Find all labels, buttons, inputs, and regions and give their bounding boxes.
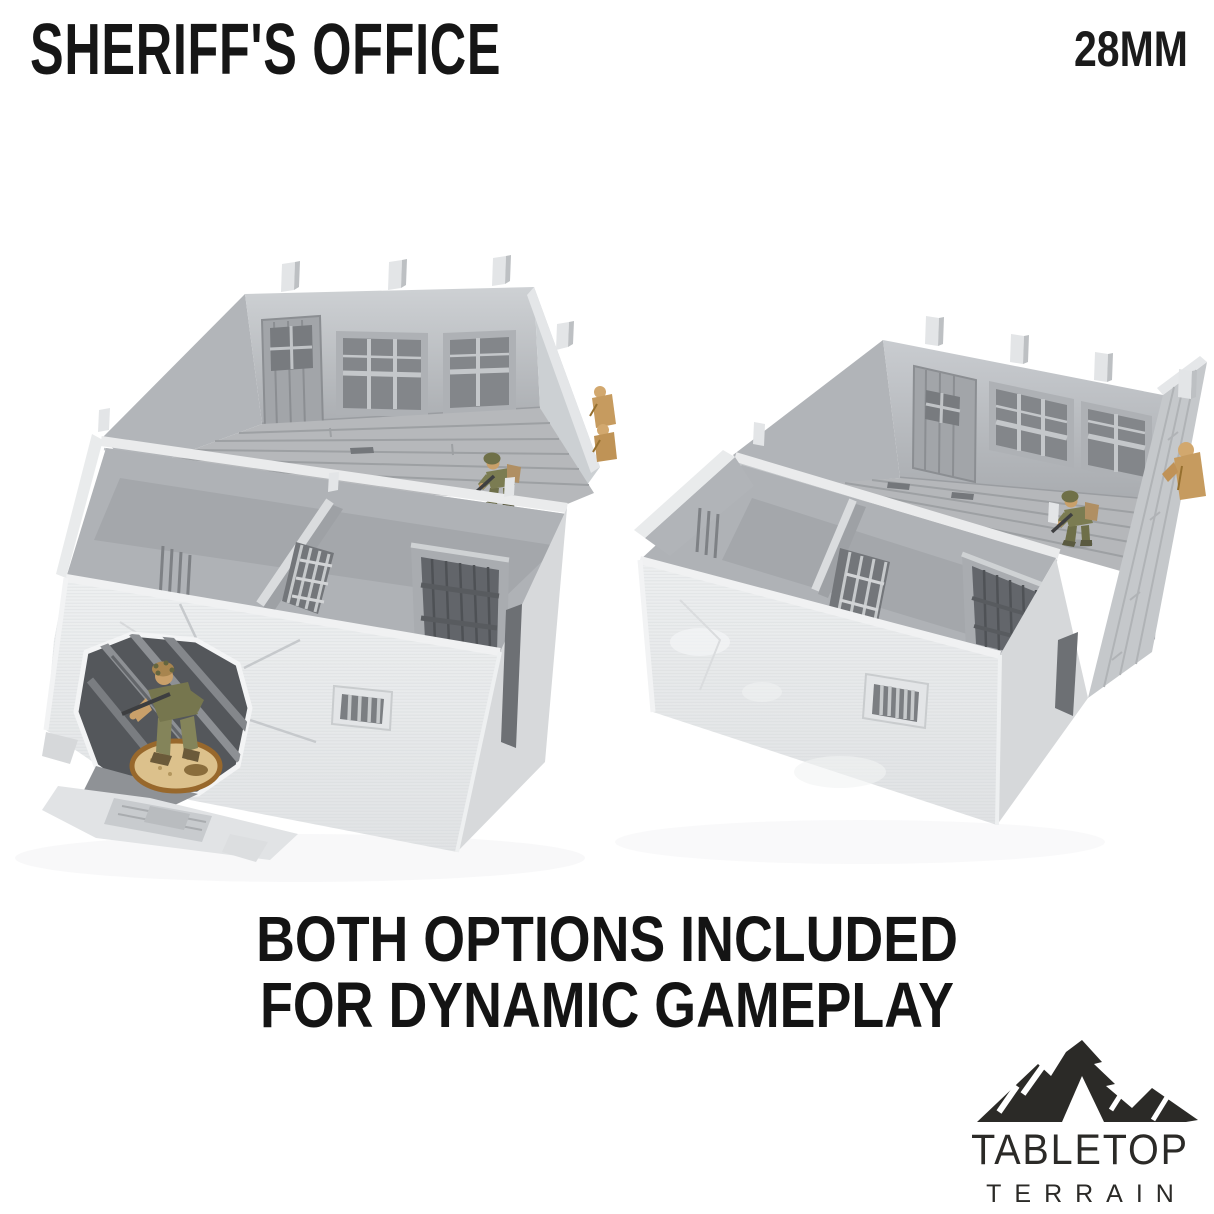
ground-shadow <box>15 834 585 882</box>
brand-wordmark: TABLETOP <box>962 1126 1198 1175</box>
unpainted-miniatures <box>590 386 617 462</box>
left-building-breached-variant <box>15 255 617 882</box>
interior-window <box>443 330 516 414</box>
barred-window <box>863 674 928 728</box>
barred-window <box>332 686 392 730</box>
interior-back-door <box>913 366 976 482</box>
right-building-intact-variant <box>615 316 1207 864</box>
mountain-icon <box>955 1036 1205 1126</box>
caption-line-2: FOR DYNAMIC GAMEPLAY <box>97 972 1117 1038</box>
caption-line-1: BOTH OPTIONS INCLUDED <box>97 906 1117 972</box>
interior-back-door <box>262 316 323 430</box>
brand-wordmark-sub: TERRAIN <box>952 1180 1208 1209</box>
product-image: SHERIFF'S OFFICE 28MM <box>0 0 1214 1214</box>
ground-shadow <box>615 820 1105 864</box>
caption: BOTH OPTIONS INCLUDED FOR DYNAMIC GAMEPL… <box>0 906 1214 1038</box>
interior-window <box>336 331 428 417</box>
brand-logo: TABLETOP TERRAIN <box>952 1036 1208 1209</box>
